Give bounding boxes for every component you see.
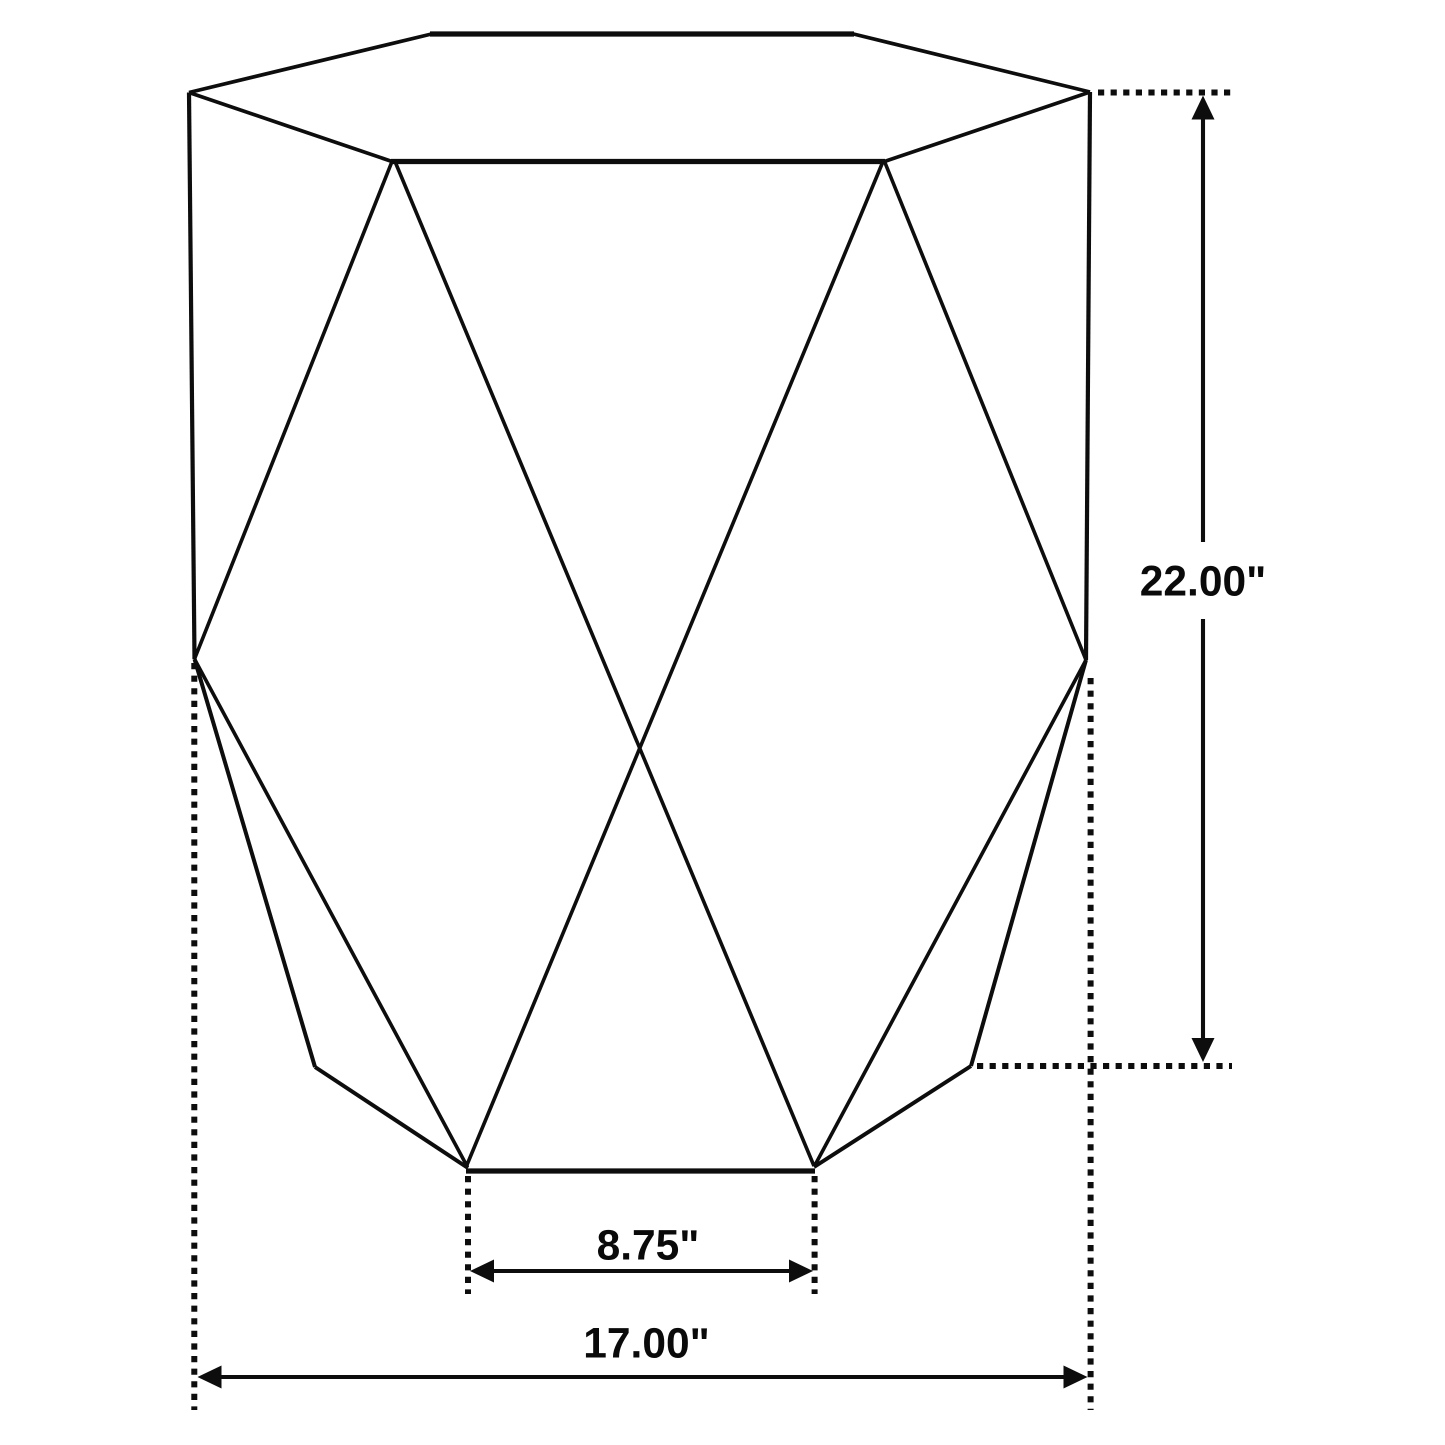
svg-text:22.00": 22.00" [1140,559,1267,606]
svg-text:17.00": 17.00" [583,1321,710,1368]
svg-text:8.75": 8.75" [597,1223,700,1270]
